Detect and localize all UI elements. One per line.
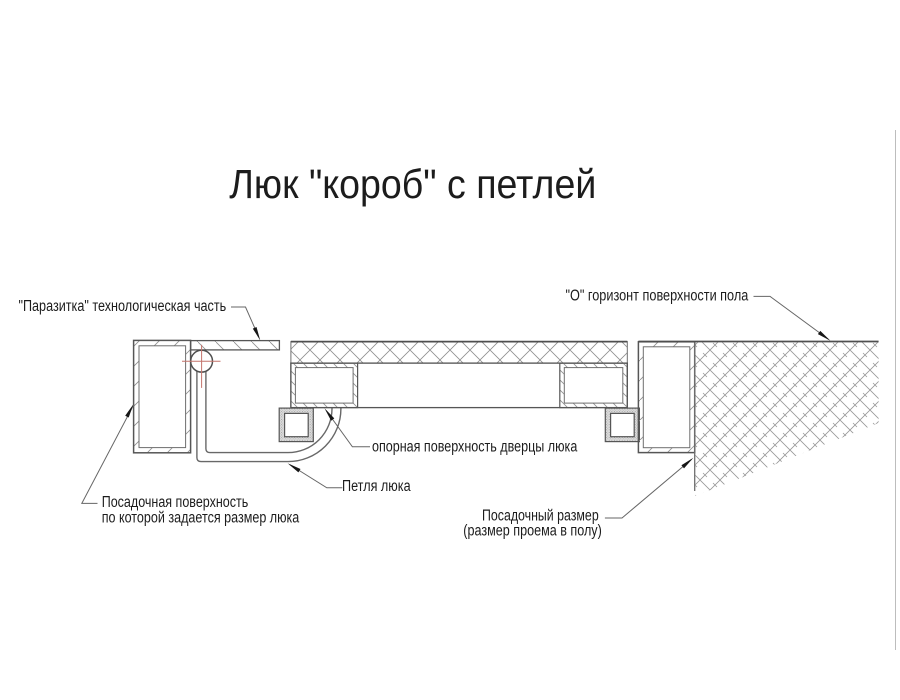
svg-text:"О" горизонт поверхности пола: "О" горизонт поверхности пола (566, 288, 749, 305)
svg-text:по которой задается размер люк: по которой задается размер люка (102, 509, 300, 526)
svg-text:(размер проема в полу): (размер проема в полу) (463, 522, 602, 539)
svg-text:опорная поверхность дверцы люк: опорная поверхность дверцы люка (372, 439, 578, 456)
svg-text:Петля люка: Петля люка (342, 478, 411, 495)
svg-text:Люк "короб" с петлей: Люк "короб" с петлей (229, 161, 596, 207)
svg-text:"Паразитка" технологическая ча: "Паразитка" технологическая часть (19, 298, 227, 315)
